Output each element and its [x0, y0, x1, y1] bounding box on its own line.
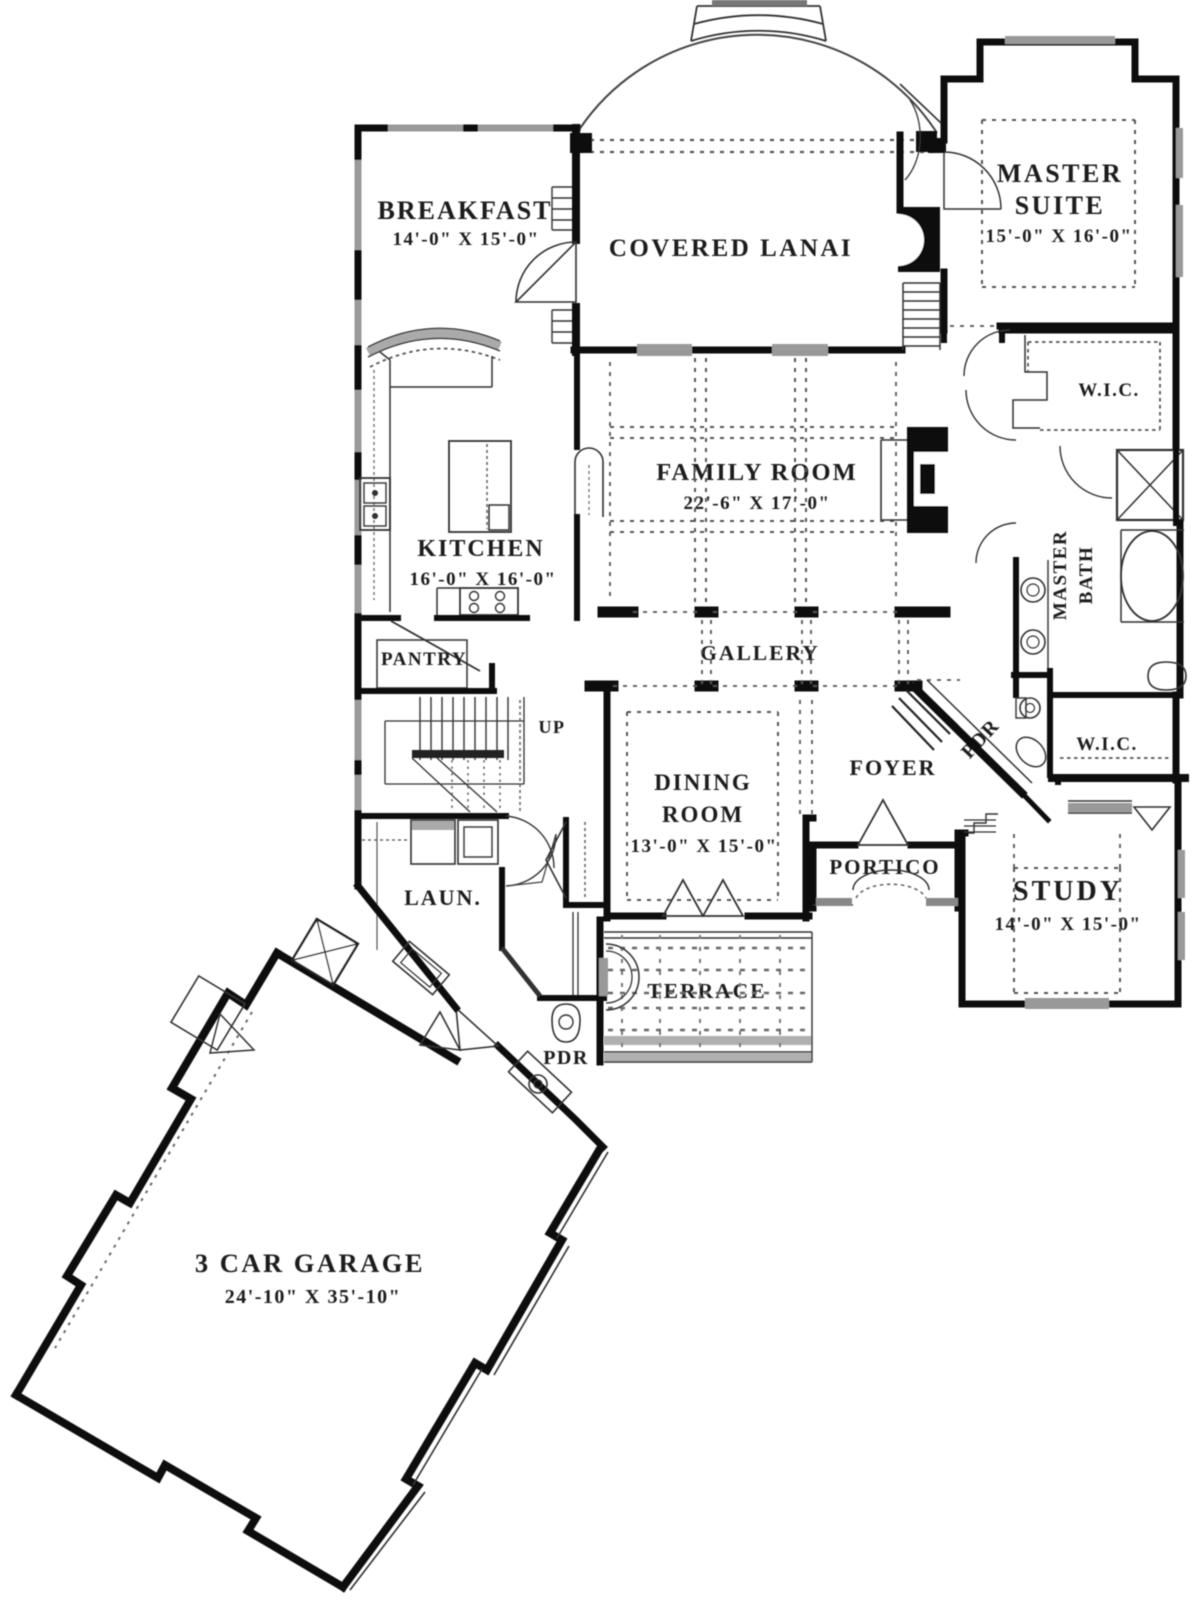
- svg-text:KITCHEN: KITCHEN: [417, 536, 544, 562]
- svg-text:BREAKFAST: BREAKFAST: [378, 196, 553, 225]
- svg-text:COVERED LANAI: COVERED LANAI: [609, 235, 853, 262]
- svg-text:W.I.C.: W.I.C.: [1078, 380, 1140, 401]
- svg-text:PORTICO: PORTICO: [829, 855, 940, 879]
- svg-text:STUDY: STUDY: [1013, 876, 1123, 907]
- svg-text:FOYER: FOYER: [850, 755, 937, 780]
- svg-text:DINING: DINING: [654, 770, 752, 795]
- svg-text:15'-0" X 16'-0": 15'-0" X 16'-0": [985, 226, 1132, 247]
- svg-text:TERRACE: TERRACE: [647, 979, 766, 1003]
- svg-text:14'-0" X 15'-0": 14'-0" X 15'-0": [392, 229, 539, 250]
- svg-text:BATH: BATH: [1076, 546, 1097, 604]
- svg-text:ROOM: ROOM: [662, 802, 744, 827]
- svg-text:3 CAR GARAGE: 3 CAR GARAGE: [195, 1248, 425, 1278]
- svg-text:PDR: PDR: [543, 1047, 589, 1069]
- svg-text:MASTER: MASTER: [997, 159, 1123, 188]
- svg-text:MASTER: MASTER: [1050, 530, 1071, 620]
- svg-text:13'-0" X 15'-0": 13'-0" X 15'-0": [630, 836, 777, 857]
- svg-text:16'-0" X 16'-0": 16'-0" X 16'-0": [409, 569, 556, 590]
- svg-text:LAUN.: LAUN.: [404, 885, 482, 910]
- svg-text:UP: UP: [539, 717, 566, 737]
- svg-text:PANTRY: PANTRY: [381, 649, 467, 670]
- svg-text:W.I.C.: W.I.C.: [1076, 734, 1138, 755]
- svg-text:24'-10" X 35'-10": 24'-10" X 35'-10": [225, 1286, 402, 1308]
- svg-text:FAMILY ROOM: FAMILY ROOM: [656, 459, 857, 486]
- svg-text:SUITE: SUITE: [1015, 191, 1106, 220]
